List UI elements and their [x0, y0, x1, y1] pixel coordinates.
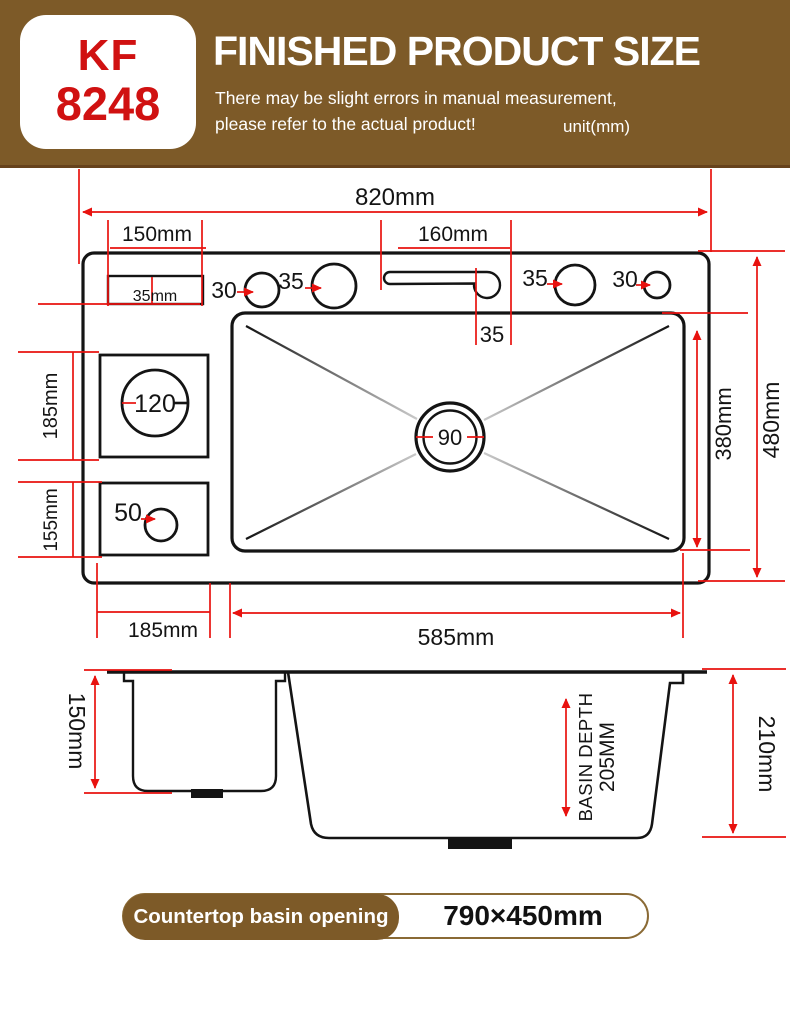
label-380: 380mm	[711, 387, 736, 460]
label-basin-depth: BASIN DEPTH	[575, 693, 596, 822]
disclaimer-line2: please refer to the actual product!	[215, 114, 476, 135]
label-210-side: 210mm	[754, 716, 780, 793]
label-585: 585mm	[418, 624, 495, 650]
side-view-dimensions	[84, 669, 786, 837]
header-banner: KF 8248 FINISHED PRODUCT SIZE There may …	[0, 0, 790, 168]
label-30-left: 30	[211, 277, 237, 303]
waterfall-slot	[384, 272, 500, 298]
faucet-hole-35-left	[312, 264, 356, 308]
label-50: 50	[114, 499, 142, 527]
unit-label: unit(mm)	[563, 117, 630, 137]
main-basin-profile	[288, 672, 683, 838]
label-480: 480mm	[758, 382, 784, 459]
countertop-opening-label: Countertop basin opening	[123, 894, 399, 940]
small-basin-profile	[124, 672, 285, 791]
label-185-bottom: 185mm	[128, 619, 198, 642]
label-35mm-tray: 35mm	[133, 288, 177, 305]
basin-diagonal-sw	[246, 454, 416, 539]
main-basin-drain	[448, 838, 512, 849]
countertop-opening-pill: Countertop basin opening 790×450mm	[122, 893, 649, 939]
label-150-side: 150mm	[64, 693, 90, 770]
label-90-drain: 90	[438, 425, 462, 450]
label-150: 150mm	[122, 223, 192, 246]
small-basin-drain	[191, 789, 223, 798]
label-30-right: 30	[612, 266, 638, 292]
label-160: 160mm	[418, 223, 488, 246]
countertop-opening-value: 790×450mm	[399, 895, 647, 937]
faucet-hole-30-left	[245, 273, 279, 307]
basin-diagonal-nw	[246, 326, 417, 419]
label-35-left: 35	[278, 268, 304, 294]
hole-50-circle	[145, 509, 177, 541]
label-185-left: 185mm	[40, 373, 62, 440]
model-code-line2: 8248	[56, 78, 161, 130]
label-155-left: 155mm	[41, 488, 62, 551]
disclaimer-line1: There may be slight errors in manual mea…	[215, 88, 617, 109]
label-35-right: 35	[522, 265, 548, 291]
label-35-slot: 35	[480, 322, 504, 347]
page-title: FINISHED PRODUCT SIZE	[213, 28, 788, 75]
model-code-line1: KF	[78, 34, 139, 78]
basin-diagonal-se	[484, 453, 669, 539]
faucet-hole-35-right	[555, 265, 595, 305]
label-820: 820mm	[355, 184, 435, 211]
label-120: 120	[134, 390, 176, 418]
label-basin-depth-value: 205MM	[596, 722, 619, 792]
model-badge: KF 8248	[20, 15, 196, 149]
